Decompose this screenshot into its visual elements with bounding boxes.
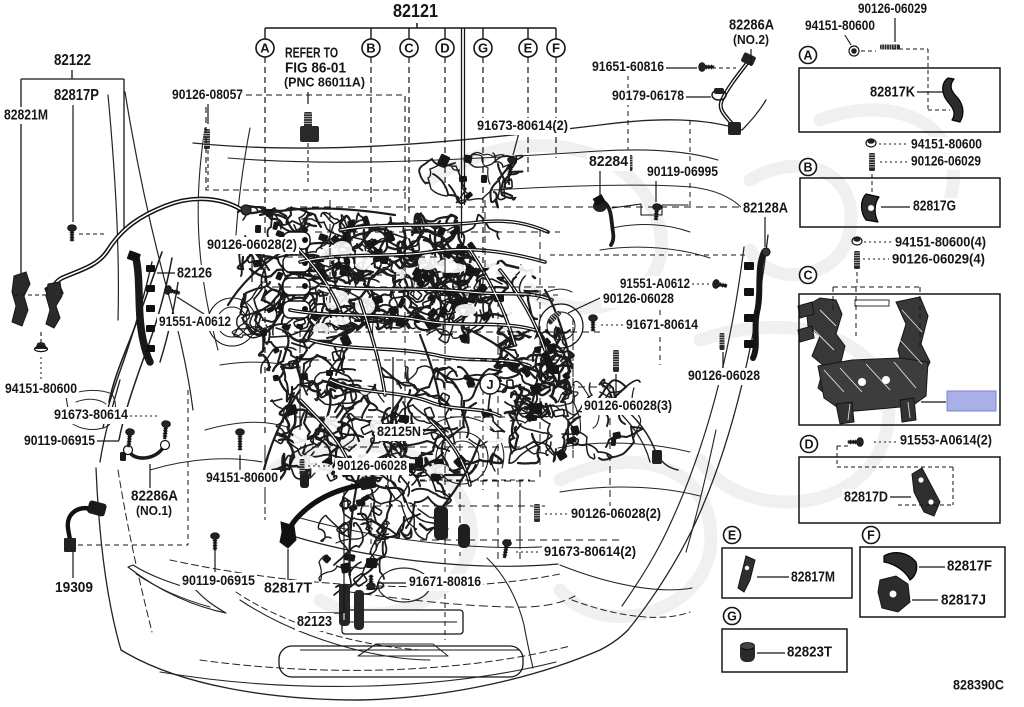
svg-text:91551-A0612: 91551-A0612 (620, 275, 690, 291)
svg-text:(NO.2): (NO.2) (733, 33, 769, 47)
svg-text:C: C (404, 41, 414, 56)
svg-text:19309: 19309 (55, 579, 93, 596)
svg-text:91553-A0614(2): 91553-A0614(2) (900, 433, 992, 448)
svg-text:94151-80600: 94151-80600 (5, 380, 77, 396)
svg-text:E: E (524, 41, 533, 56)
svg-text:82284: 82284 (589, 153, 629, 170)
svg-text:82122: 82122 (54, 52, 91, 69)
svg-text:94151-80600: 94151-80600 (805, 17, 875, 33)
svg-text:E: E (728, 529, 736, 543)
svg-text:B: B (803, 161, 812, 175)
svg-text:90126-06029: 90126-06029 (911, 154, 981, 169)
svg-text:91673-80614(2): 91673-80614(2) (477, 117, 568, 133)
svg-text:90126-06028: 90126-06028 (337, 457, 407, 473)
svg-text:F: F (867, 529, 875, 543)
svg-text:D: D (804, 438, 813, 452)
svg-text:90126-06029(4): 90126-06029(4) (892, 252, 985, 267)
svg-text:91651-60816: 91651-60816 (592, 58, 664, 74)
svg-text:90126-06028(2): 90126-06028(2) (571, 505, 661, 521)
svg-text:90126-06029: 90126-06029 (858, 0, 927, 16)
svg-text:A: A (260, 41, 270, 56)
svg-text:82817K: 82817K (870, 84, 915, 100)
svg-text:94151-80600: 94151-80600 (911, 137, 982, 152)
svg-text:J: J (486, 377, 493, 392)
svg-text:91673-80614: 91673-80614 (54, 406, 128, 422)
svg-text:90126-08057: 90126-08057 (172, 86, 243, 102)
svg-text:F: F (552, 41, 560, 56)
svg-text:82817J: 82817J (941, 592, 986, 608)
svg-text:82817F: 82817F (947, 558, 992, 574)
svg-text:A: A (803, 49, 812, 63)
svg-text:90126-06028(2): 90126-06028(2) (207, 236, 297, 252)
svg-text:828390C: 828390C (953, 678, 1004, 693)
svg-text:94151-80600: 94151-80600 (206, 469, 278, 485)
svg-text:90179-06178: 90179-06178 (612, 87, 684, 103)
svg-text:82817G: 82817G (913, 198, 956, 214)
svg-text:91551-A0612: 91551-A0612 (159, 313, 231, 329)
svg-text:82126: 82126 (177, 265, 212, 281)
svg-text:90126-06028: 90126-06028 (603, 290, 674, 306)
svg-text:G: G (727, 610, 737, 624)
svg-text:91673-80614(2): 91673-80614(2) (544, 543, 636, 559)
svg-text:(PNC 86011A): (PNC 86011A) (284, 74, 365, 89)
svg-text:G: G (478, 41, 488, 56)
svg-text:C: C (803, 269, 812, 283)
svg-text:82817D: 82817D (844, 489, 888, 505)
svg-text:82823T: 82823T (787, 644, 832, 660)
svg-text:82121: 82121 (393, 1, 438, 21)
svg-text:82817M: 82817M (791, 569, 835, 585)
svg-text:B: B (366, 41, 375, 56)
svg-text:94151-80600(4): 94151-80600(4) (895, 235, 986, 250)
svg-text:82821M: 82821M (4, 107, 48, 123)
svg-text:90119-06915: 90119-06915 (24, 432, 95, 448)
svg-text:(NO.1): (NO.1) (136, 504, 172, 518)
svg-text:82128A: 82128A (743, 200, 788, 216)
svg-text:82125N: 82125N (377, 423, 421, 439)
svg-text:90126-06028(3): 90126-06028(3) (584, 397, 672, 413)
svg-text:82123: 82123 (297, 613, 332, 630)
svg-text:REFER TO: REFER TO (285, 45, 338, 61)
svg-text:82286A: 82286A (131, 488, 178, 504)
svg-text:90126-06028: 90126-06028 (688, 367, 760, 383)
svg-text:90119-06995: 90119-06995 (647, 163, 718, 179)
svg-text:91671-80816: 91671-80816 (409, 573, 481, 589)
svg-text:82817P: 82817P (54, 87, 99, 104)
svg-text:90119-06915: 90119-06915 (182, 572, 255, 588)
svg-text:82286A: 82286A (729, 17, 774, 33)
svg-text:91671-80614: 91671-80614 (626, 316, 698, 332)
svg-text:82817T: 82817T (264, 580, 312, 596)
svg-text:D: D (440, 41, 449, 56)
